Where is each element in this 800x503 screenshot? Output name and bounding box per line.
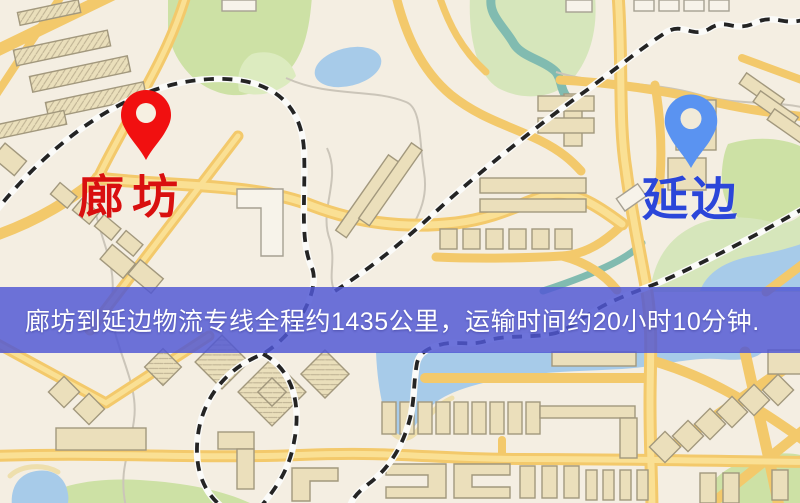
route-info-text: 廊坊到延边物流专线全程约1435公里，运输时间约20小时10分钟. <box>25 302 760 338</box>
destination-city-label: 延边 <box>642 176 740 222</box>
origin-pin-hole <box>136 103 156 123</box>
destination-pin-hole <box>681 108 702 129</box>
map-screenshot: 廊坊 延边 廊坊到延边物流专线全程约1435公里，运输时间约20小时10分钟. <box>0 0 800 503</box>
map-canvas <box>0 0 800 503</box>
route-info-banner: 廊坊到延边物流专线全程约1435公里，运输时间约20小时10分钟. <box>0 287 800 353</box>
origin-city-label: 廊坊 <box>78 174 186 220</box>
